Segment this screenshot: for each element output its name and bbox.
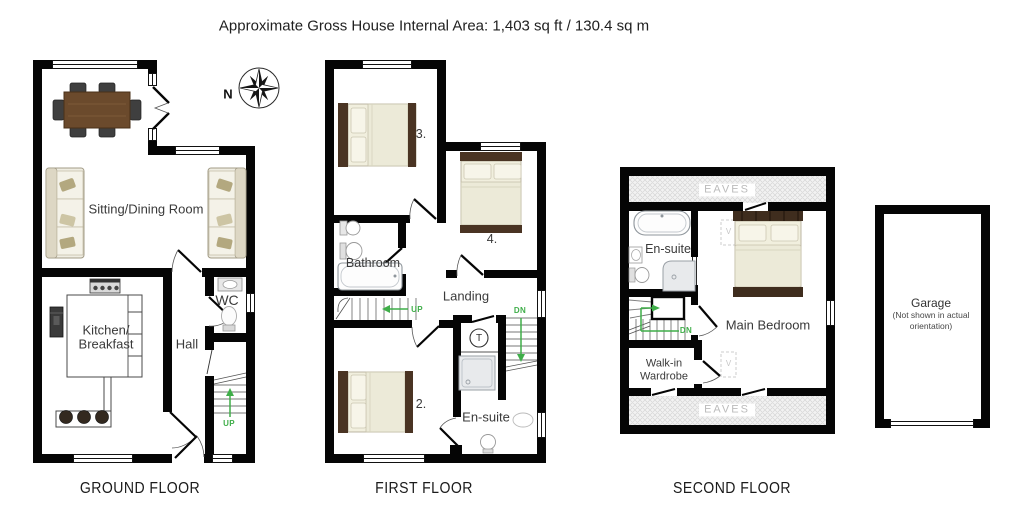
kitchen-counter: [56, 295, 142, 427]
wall: [691, 211, 698, 257]
wall: [629, 388, 651, 396]
floorplan-drawing: [0, 0, 1024, 524]
understairs-line: [207, 350, 212, 374]
garage-label: Garage: [911, 297, 951, 309]
room-label-hall: Hall: [176, 338, 198, 351]
wall: [450, 445, 462, 454]
garage-note-line1: (Not shown in actual: [892, 311, 969, 320]
sofa-left: [46, 168, 84, 258]
door-sitting-room: [172, 250, 201, 272]
room-label-sitting-dining: Sitting/Dining Room: [89, 203, 204, 216]
velux-label-2: V: [726, 360, 731, 368]
room-label-en-suite-first: En-suite: [462, 411, 510, 424]
wall: [767, 388, 826, 396]
page-title: Approximate Gross House Internal Area: 1…: [219, 19, 649, 34]
dining-table: [53, 83, 141, 137]
window-icon: [826, 300, 835, 326]
shower-tray-icon: [459, 356, 495, 390]
bed-bedroom-2: [338, 371, 413, 433]
french-door-icon: [148, 86, 169, 129]
wall: [498, 315, 506, 400]
door-eaves-top: [745, 203, 766, 210]
door-en-suite-first: [440, 418, 459, 447]
wc-toilet-icon: [222, 307, 237, 332]
stairs-up-ground: [214, 373, 246, 417]
sink-icon: [629, 247, 642, 263]
wall: [163, 277, 172, 412]
bed-bedroom-3: [338, 103, 416, 167]
stairs-up-first: [336, 298, 416, 320]
floor-label-first: FIRST FLOOR: [375, 481, 473, 497]
door-bedroom-3: [410, 199, 436, 219]
room-label-main-bedroom: Main Bedroom: [726, 319, 811, 332]
wall: [398, 223, 406, 248]
wall: [677, 388, 741, 396]
room-label-bedroom-4: 4.: [487, 233, 497, 246]
stairs-up-label-ground: UP: [223, 420, 235, 428]
tank-label: T: [476, 334, 482, 344]
wall: [694, 384, 702, 388]
eaves-label-top: EAVES: [699, 184, 755, 197]
fridge-icon: [50, 307, 63, 337]
ensuite-sink-icon: [513, 413, 533, 427]
stairs-down-label-second: DN: [680, 327, 692, 335]
door-bedroom-2: [412, 326, 439, 347]
wall: [205, 342, 214, 350]
front-door: [172, 436, 204, 463]
bed-bedroom-4: [460, 152, 522, 233]
toilet-icon: [629, 268, 649, 283]
room-label-kitchen-line1: Kitchen/: [83, 324, 130, 337]
wall: [334, 320, 412, 328]
wall: [629, 202, 743, 211]
wall: [437, 151, 446, 223]
ensuite-toilet-icon: [481, 435, 496, 454]
garage-door-icon: [890, 419, 974, 428]
floor-label-second: SECOND FLOOR: [673, 481, 791, 497]
stairs-down-label-first: DN: [514, 307, 526, 315]
wall: [768, 202, 826, 211]
wall: [205, 333, 246, 342]
room-label-bedroom-2: 2.: [416, 398, 426, 411]
wall: [205, 326, 214, 333]
wall: [484, 270, 537, 278]
bed-main-bedroom: [733, 211, 803, 297]
stairs-down-first: [506, 318, 537, 371]
velux-label-1: V: [726, 228, 731, 236]
wall: [461, 315, 472, 323]
wall: [202, 268, 246, 277]
door-tank-cupboard: [472, 316, 494, 322]
ground-floor-plan: [33, 60, 255, 463]
compass-rose: [239, 68, 279, 108]
wall: [42, 268, 172, 277]
stairs-down-second: [629, 297, 685, 340]
second-floor-plan: [620, 167, 835, 434]
sofa-right: [208, 168, 246, 258]
wall: [629, 340, 702, 348]
door-walk-in-wardrobe: [703, 361, 720, 383]
eaves-label-bottom: EAVES: [699, 404, 755, 417]
door-eaves-bottom-left: [652, 389, 675, 395]
stairs-up-label-first: UP: [411, 306, 423, 314]
room-label-bedroom-3: 3.: [416, 128, 426, 141]
wall: [205, 277, 214, 296]
bathroom-sink-icon: [340, 221, 360, 235]
room-label-kitchen-line2: Breakfast: [79, 338, 134, 351]
door-kitchen: [170, 412, 196, 448]
door-eaves-bottom-right: [742, 389, 765, 395]
door-main-bedroom: [699, 306, 717, 336]
stool-icons: [60, 411, 109, 424]
floorplan-page: Approximate Gross House Internal Area: 1…: [0, 0, 1024, 524]
compass-north-label: N: [223, 88, 232, 101]
room-label-walk-in-line1: Walk-in: [646, 359, 682, 370]
room-label-bathroom: Bathroom: [346, 257, 400, 270]
room-label-walk-in-line2: Wardrobe: [640, 372, 688, 383]
wall: [694, 348, 702, 360]
garage-note-line2: orientation): [910, 322, 953, 331]
room-label-landing: Landing: [443, 290, 489, 303]
room-label-en-suite-second: En-suite: [645, 243, 691, 256]
door-bedroom-4: [457, 255, 483, 276]
wall: [205, 376, 214, 454]
wall: [446, 270, 457, 278]
room-label-wc: WC: [215, 293, 238, 307]
bath-icon: [634, 211, 690, 235]
wc-sink-icon: [218, 278, 242, 291]
hob-icon: [90, 279, 120, 293]
shower-tray-icon: [663, 261, 695, 291]
floor-label-ground: GROUND FLOOR: [80, 481, 200, 497]
